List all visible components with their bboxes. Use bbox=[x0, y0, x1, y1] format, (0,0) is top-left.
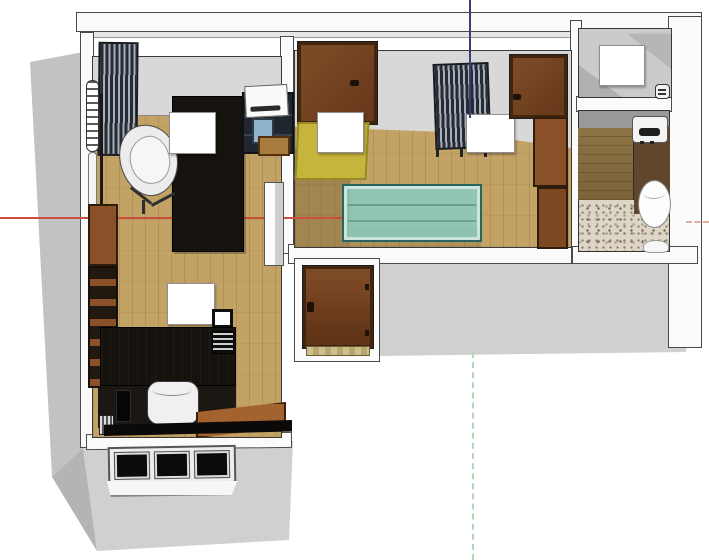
window-pane-2 bbox=[155, 452, 189, 479]
open-side-door[interactable] bbox=[510, 55, 567, 118]
wash-basin[interactable] bbox=[643, 240, 669, 253]
chair-leg-3 bbox=[142, 200, 145, 214]
teal-glass-coffee-table[interactable] bbox=[342, 184, 482, 242]
entrance-door-handle bbox=[307, 302, 314, 312]
photo-card-rug[interactable] bbox=[317, 112, 364, 153]
entrance-hinge-top bbox=[365, 284, 369, 290]
toilet-seat-line bbox=[643, 187, 665, 199]
entrance-hinge-bottom bbox=[365, 330, 369, 336]
floorplan-viewport bbox=[0, 0, 709, 560]
water-heater[interactable] bbox=[632, 116, 668, 143]
blue-axis-line bbox=[469, 0, 471, 118]
window-sill bbox=[104, 481, 240, 497]
red-axis-dashed-line bbox=[686, 221, 709, 223]
printer-slot bbox=[250, 105, 280, 112]
window-pane-1 bbox=[115, 452, 149, 479]
desk-vent-grille[interactable] bbox=[212, 331, 234, 354]
threshold bbox=[306, 346, 370, 356]
photo-card-storage[interactable] bbox=[599, 45, 645, 86]
tablet[interactable] bbox=[212, 309, 233, 328]
photo-card-rack[interactable] bbox=[466, 114, 515, 153]
wall-stub-study-living[interactable] bbox=[264, 182, 284, 266]
photo-card-study[interactable] bbox=[169, 112, 216, 154]
drawer-box[interactable] bbox=[258, 136, 290, 156]
heater-slot bbox=[639, 128, 660, 136]
printer[interactable] bbox=[244, 84, 289, 118]
door-handle-side bbox=[513, 94, 521, 100]
window-pane-3 bbox=[195, 451, 229, 478]
table-shelf-line bbox=[348, 204, 476, 206]
pc-tower[interactable] bbox=[116, 390, 131, 422]
radiator-lower-bar[interactable] bbox=[88, 152, 97, 212]
door-handle-living bbox=[350, 80, 359, 86]
three-pane-window[interactable] bbox=[108, 445, 237, 485]
office-chair-back bbox=[152, 384, 192, 396]
photo-card-office[interactable] bbox=[167, 283, 215, 325]
office-chair[interactable] bbox=[147, 381, 199, 425]
wardrobe-lower[interactable] bbox=[537, 187, 568, 249]
appliance-slot bbox=[658, 89, 666, 91]
table-shelf-line-2 bbox=[348, 220, 476, 222]
toilet[interactable] bbox=[638, 180, 671, 228]
wall-cabinet[interactable] bbox=[88, 204, 118, 266]
small-appliance[interactable] bbox=[655, 84, 670, 99]
appliance-slot-2 bbox=[658, 93, 666, 95]
wall-right-outer[interactable] bbox=[668, 16, 702, 348]
bathroom-wood-deck[interactable] bbox=[578, 128, 634, 200]
green-axis-dashed-line bbox=[472, 352, 474, 560]
heater-feet bbox=[640, 141, 644, 144]
vertical-radiator[interactable] bbox=[86, 80, 99, 152]
wardrobe-upper[interactable] bbox=[533, 117, 568, 187]
